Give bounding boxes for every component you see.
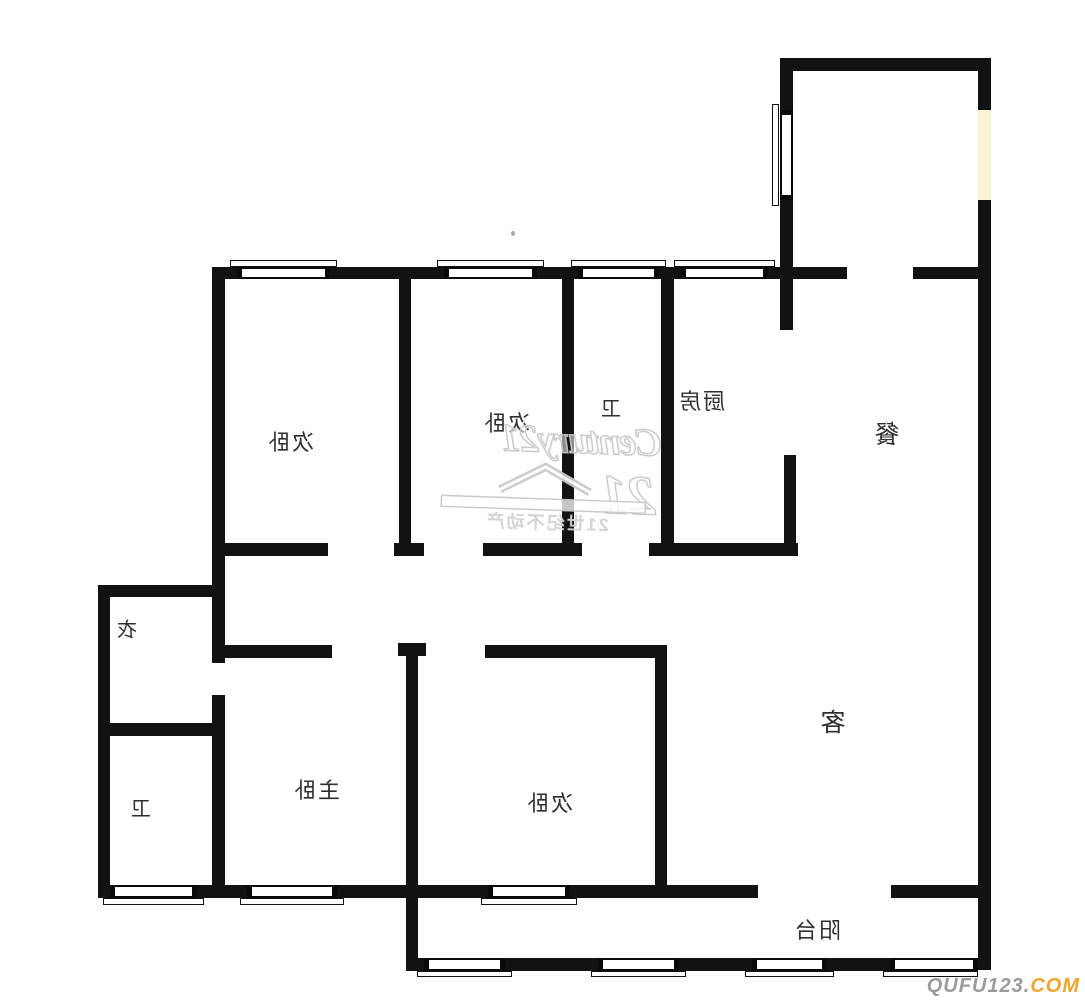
site-credit-suffix: COM — [1030, 975, 1080, 997]
wall — [337, 885, 488, 898]
wall — [978, 71, 991, 110]
room-label-master-bedroom: 主卧 — [292, 773, 340, 805]
room-label-living: 客 — [818, 703, 845, 739]
room-label-bath-bottom: 卫 — [129, 793, 151, 822]
room-label-bedroom-bottom: 次卧 — [525, 786, 573, 818]
window-sill — [230, 260, 337, 267]
watermark-brand-text: Century21 — [437, 416, 662, 463]
window — [237, 267, 330, 279]
wall — [505, 958, 598, 971]
wall — [978, 200, 991, 970]
wall — [394, 543, 424, 556]
window — [598, 958, 679, 971]
window — [780, 110, 793, 200]
window-sill — [437, 260, 544, 267]
window-sill — [591, 971, 686, 977]
wall — [223, 645, 332, 658]
window-opening — [978, 110, 991, 200]
wall — [485, 645, 666, 658]
wall — [225, 543, 328, 556]
wall — [827, 958, 890, 971]
room-label-bedroom-top-left: 次卧 — [266, 425, 314, 457]
window-sill — [772, 104, 779, 206]
century21-house-icon: 21 — [435, 455, 661, 519]
window — [890, 958, 978, 971]
wall — [537, 267, 578, 279]
wall — [649, 543, 798, 556]
room-label-bath-top: 卫 — [599, 393, 621, 422]
site-credit: QUFU123.COM — [927, 975, 1080, 998]
window — [247, 885, 337, 898]
wall — [98, 585, 110, 898]
wall — [483, 543, 582, 556]
wall — [212, 695, 225, 898]
window-sill — [674, 260, 775, 267]
wall — [891, 885, 991, 898]
window-sill — [103, 898, 204, 905]
site-credit-name: QUFU123 — [927, 975, 1024, 997]
window-sill — [481, 898, 577, 905]
wall — [659, 267, 681, 279]
window-sill — [417, 971, 512, 977]
wall — [661, 279, 674, 543]
room-label-closet: 衣 — [115, 614, 137, 643]
wall — [655, 645, 667, 885]
window — [488, 885, 570, 898]
room-label-balcony: 阳台 — [793, 913, 841, 945]
wall — [780, 58, 793, 110]
window — [424, 958, 505, 971]
room-label-dining: 餐 — [872, 415, 899, 451]
wall — [406, 958, 424, 971]
century21-watermark: Century21 21 21世纪不动产 — [434, 416, 662, 556]
window-sill — [571, 260, 666, 267]
wall — [780, 200, 793, 330]
wall — [406, 650, 418, 970]
wall — [399, 279, 411, 543]
window — [110, 885, 197, 898]
svg-text:21: 21 — [599, 464, 658, 528]
wall — [98, 723, 213, 736]
window-sill — [240, 898, 344, 905]
wall — [330, 267, 444, 279]
watermark-caption: 21世纪不动产 — [434, 505, 659, 539]
floor-plan: 次卧 次卧 卫 厨房 餐 衣 卫 主卧 次卧 客 阳台 Century21 21… — [0, 0, 1085, 1000]
window — [444, 267, 537, 279]
wall — [679, 958, 752, 971]
room-label-bedroom-top-mid: 次卧 — [482, 406, 530, 438]
wall — [562, 279, 574, 543]
wall — [197, 885, 247, 898]
window — [752, 958, 827, 971]
window — [578, 267, 659, 279]
wall — [784, 455, 796, 543]
window-sill — [745, 971, 834, 977]
wall — [570, 885, 758, 898]
window — [681, 267, 768, 279]
print-artifact — [511, 231, 515, 236]
wall — [782, 58, 991, 71]
room-label-kitchen: 厨房 — [677, 384, 725, 416]
wall — [98, 585, 220, 597]
wall — [212, 267, 225, 663]
